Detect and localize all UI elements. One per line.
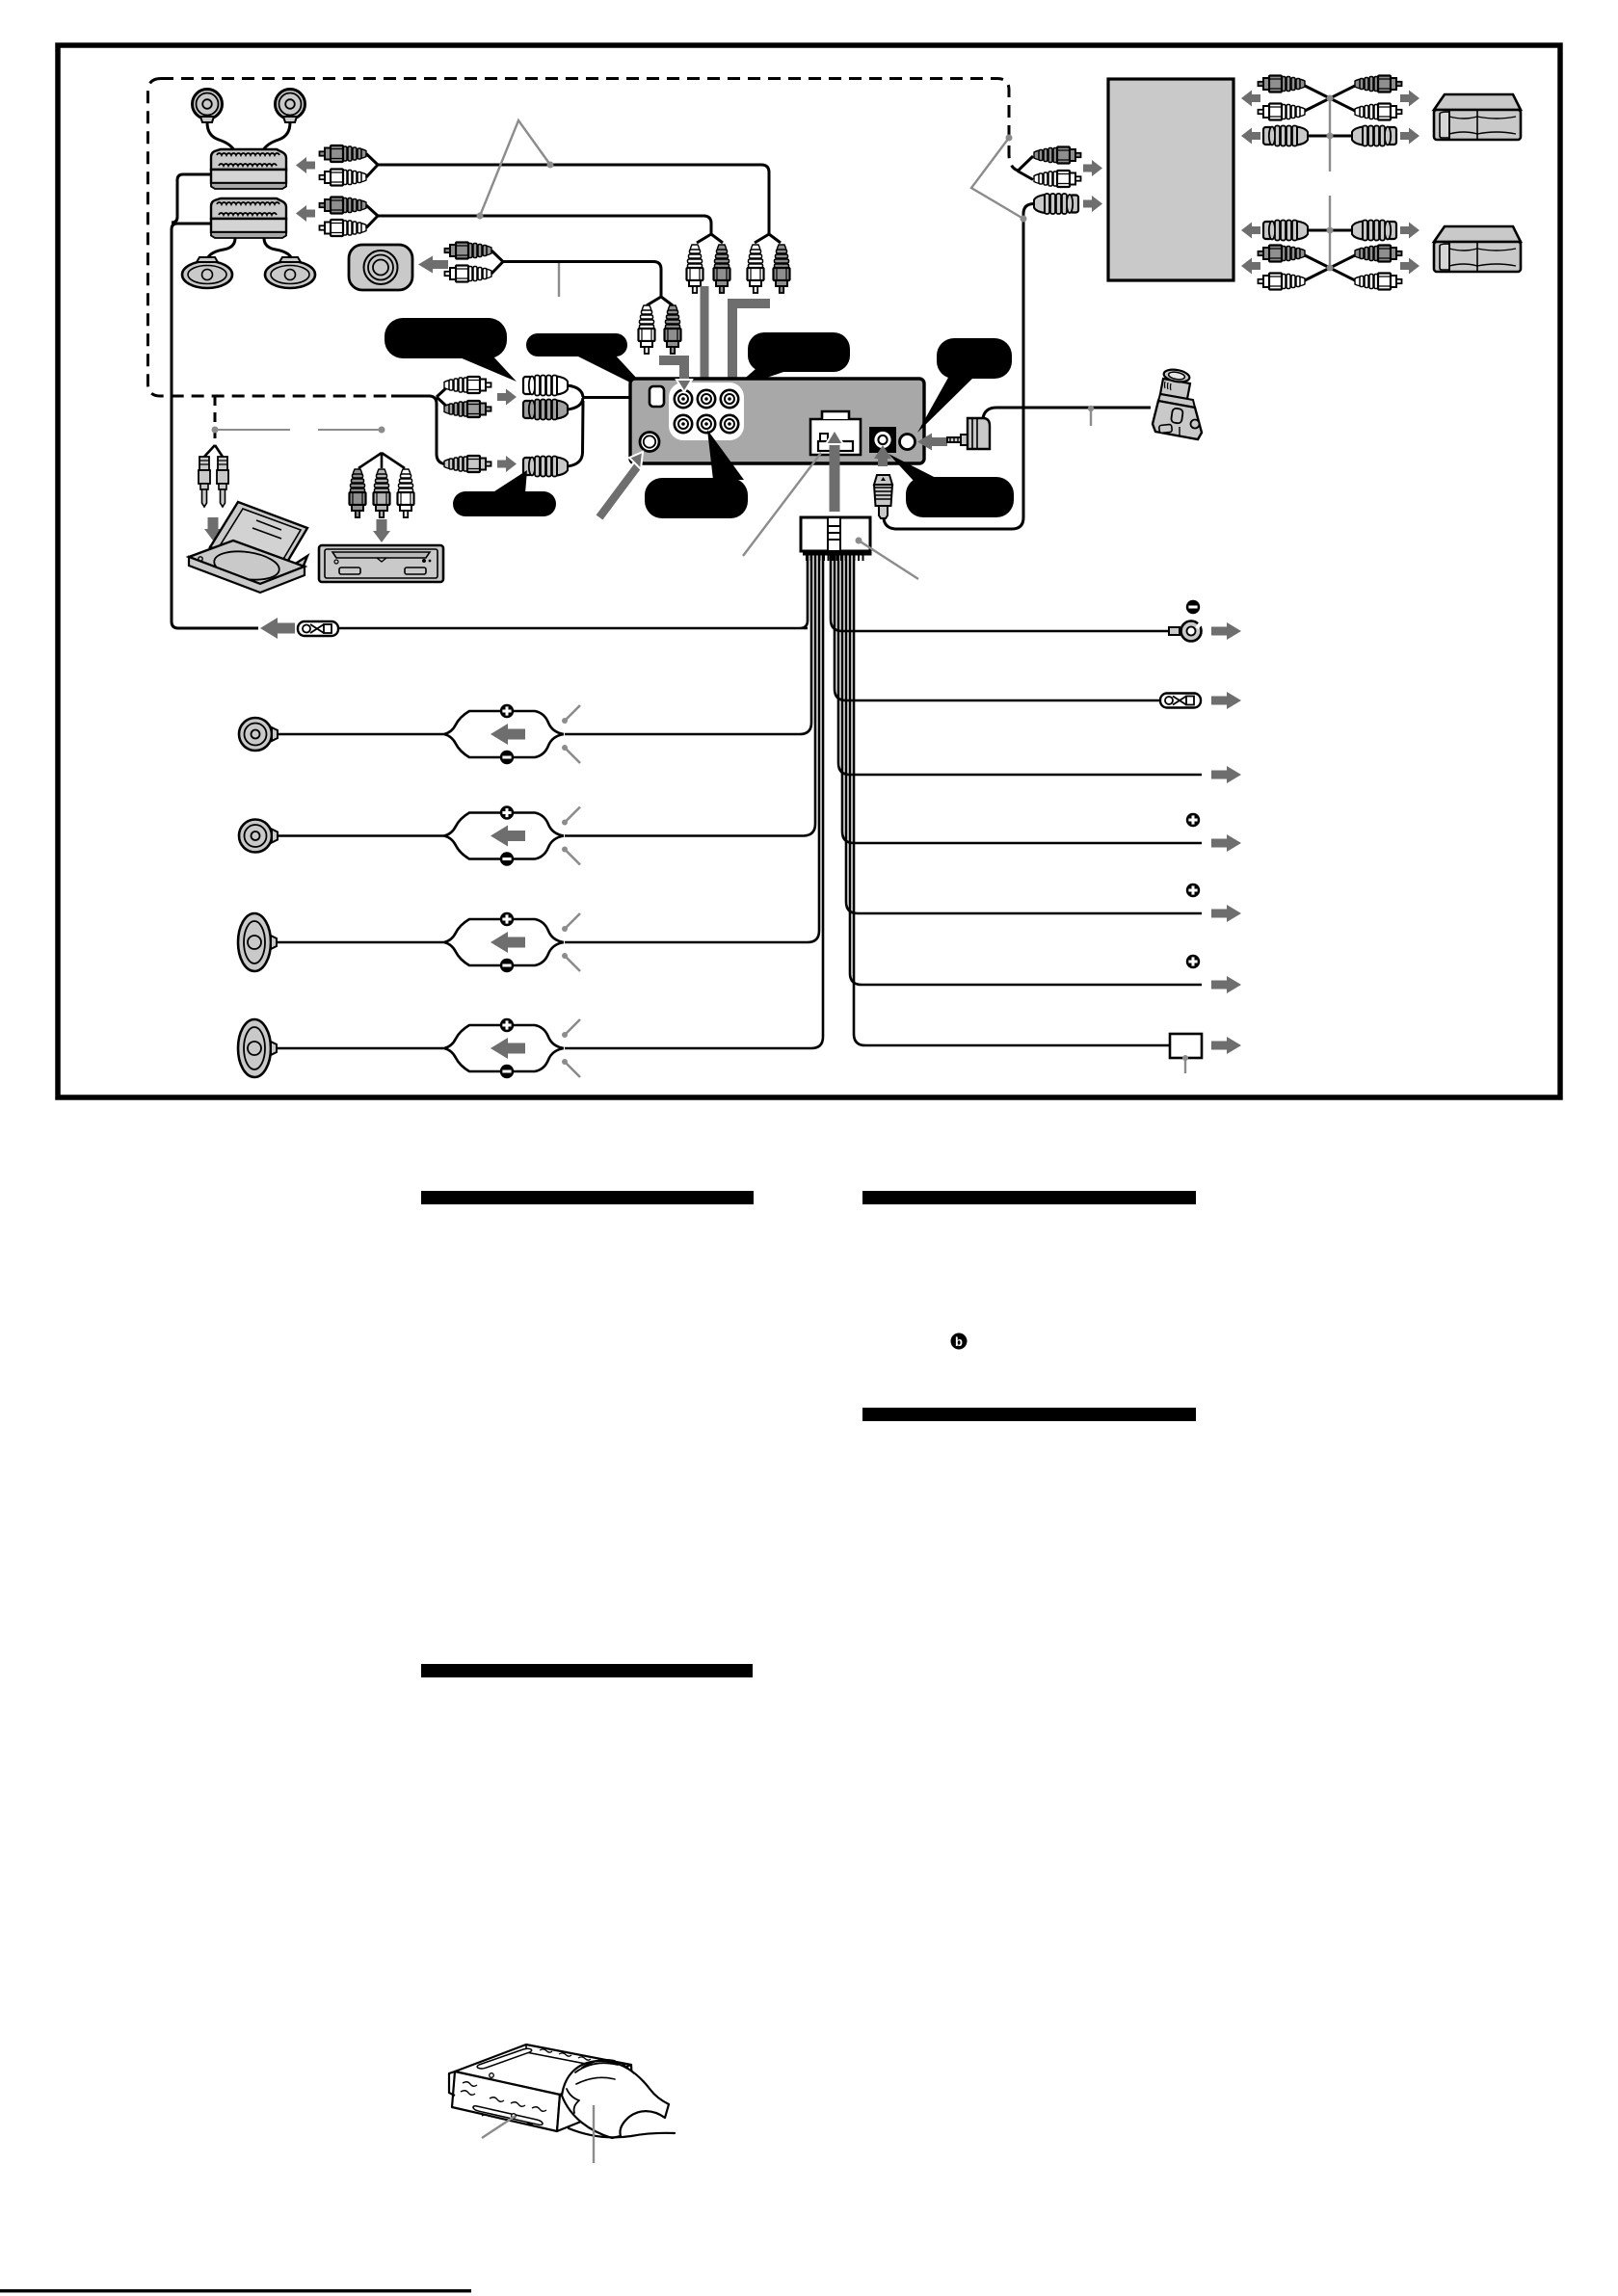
svg-text:b: b [955, 1334, 963, 1349]
